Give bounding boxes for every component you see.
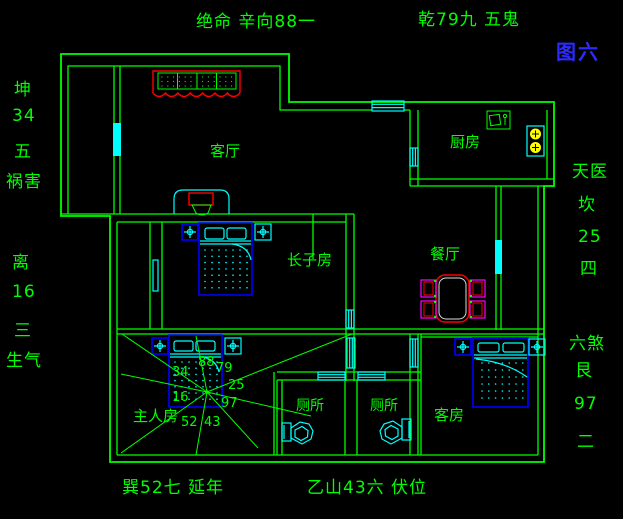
sofa-icon bbox=[174, 190, 229, 215]
room-label-guest: 客房 bbox=[434, 408, 464, 423]
chart-number-w: 16 bbox=[172, 391, 189, 404]
figure-label: 图六 bbox=[556, 42, 600, 62]
chair-icon bbox=[470, 280, 485, 297]
annotation-left-6: 三 bbox=[14, 323, 32, 340]
chart-number-se: 97 bbox=[221, 397, 238, 410]
annotation-left-5: 16 bbox=[12, 284, 36, 301]
room-label-dining: 餐厅 bbox=[430, 247, 460, 262]
annotation-left-2: 五 bbox=[14, 144, 32, 161]
chart-number-s: 43 bbox=[204, 416, 221, 429]
chart-number-n: 88 bbox=[198, 356, 215, 369]
annotation-right-0: 天医 bbox=[572, 164, 608, 181]
room-label-toilet-left: 厕所 bbox=[296, 399, 324, 413]
chart-number-e: 25 bbox=[228, 379, 245, 392]
annotation-right-7: 二 bbox=[577, 434, 595, 451]
chart-number-nw: 34 bbox=[172, 366, 189, 379]
bed-guest-icon bbox=[455, 338, 545, 407]
annotation-left-1: 34 bbox=[12, 108, 36, 125]
chart-number-sw: 52 bbox=[181, 416, 198, 429]
annotation-bottom-left: 巽52七 延年 bbox=[122, 480, 224, 497]
eldest-son-left-window-icon bbox=[153, 260, 158, 291]
kitchen-left-window-icon bbox=[410, 148, 418, 166]
toilet-left-window-icon bbox=[318, 372, 345, 380]
chair-icon bbox=[421, 301, 436, 318]
toilet-right-icon bbox=[380, 419, 411, 444]
cad-floorplan-screen: { "figure": { "label": "图六" }, "annotati… bbox=[0, 0, 623, 519]
curtain-window-icon bbox=[153, 71, 240, 97]
stove-icon bbox=[527, 126, 544, 156]
chair-icon bbox=[470, 301, 485, 318]
annotation-left-3: 祸害 bbox=[6, 174, 42, 191]
room-label-master: 主人房 bbox=[133, 409, 178, 424]
annotation-left-4: 离 bbox=[12, 255, 30, 272]
dining-table-icon bbox=[421, 275, 485, 322]
annotation-right-4: 六煞 bbox=[569, 336, 605, 353]
chair-icon bbox=[421, 280, 436, 297]
fengshui-rays bbox=[121, 334, 352, 455]
annotation-right-2: 25 bbox=[578, 229, 602, 246]
annotation-left-0: 坤 bbox=[14, 82, 32, 99]
annotation-right-6: 97 bbox=[574, 396, 598, 413]
annotation-right-3: 四 bbox=[580, 261, 598, 278]
guest-door-icon bbox=[410, 339, 418, 367]
annotation-bottom-right: 乙山43六 伏位 bbox=[307, 480, 427, 497]
room-label-living: 客厅 bbox=[210, 144, 240, 159]
toilet-right-window-icon bbox=[358, 372, 385, 380]
annotation-left-7: 生气 bbox=[6, 353, 42, 370]
living-left-door-icon bbox=[113, 123, 121, 156]
annotation-right-5: 艮 bbox=[575, 363, 593, 380]
corridor-window-icon bbox=[346, 310, 354, 328]
annotation-top-right: 乾79九 五鬼 bbox=[418, 12, 520, 29]
room-label-eldest-son: 长子房 bbox=[287, 253, 332, 268]
annotation-top-left: 绝命 辛向88一 bbox=[196, 14, 316, 31]
sink-icon bbox=[487, 111, 510, 129]
room-label-kitchen: 厨房 bbox=[450, 135, 480, 150]
annotation-right-1: 坎 bbox=[578, 197, 596, 214]
bed-eldest-son-icon bbox=[182, 223, 271, 295]
toilet-left-icon bbox=[282, 422, 313, 444]
room-label-toilet-right: 厕所 bbox=[370, 399, 398, 413]
entry-door-icon bbox=[495, 240, 502, 274]
chart-number-ne: 79 bbox=[216, 362, 233, 375]
